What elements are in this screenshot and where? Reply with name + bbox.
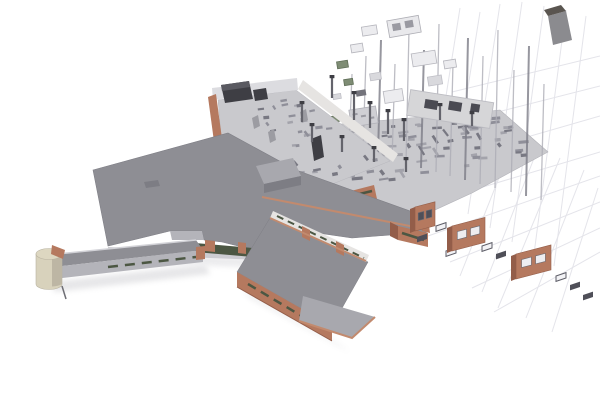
column-cap (330, 75, 335, 78)
floating-panel (383, 89, 404, 104)
bim-model-rendering (0, 0, 600, 400)
brick-panel-window (418, 211, 424, 220)
brick-panel-window (426, 209, 432, 218)
south-brick-post (205, 240, 215, 252)
column-cap (402, 118, 407, 121)
floating-panel-face (333, 93, 342, 99)
floor-partition-speckle (515, 151, 521, 153)
column-cap (438, 103, 443, 106)
column-cap (352, 91, 357, 94)
south-brick-post (238, 242, 246, 254)
floating-panel (333, 93, 342, 99)
floor-partition-speckle (388, 135, 393, 138)
column-cap (340, 135, 345, 138)
floor-partition-speckle (296, 144, 300, 147)
panel-opening (404, 20, 413, 28)
floating-panel-face (361, 25, 377, 36)
floor-partition-speckle (292, 144, 296, 147)
column-cap (300, 101, 305, 104)
floor-partition-speckle (443, 146, 450, 149)
floor-partition-speckle (263, 116, 269, 120)
column-cap (470, 111, 475, 114)
west-bar-brick-post (196, 246, 205, 260)
floating-panel (344, 78, 354, 85)
column-cap (372, 146, 377, 149)
floating-panel (361, 25, 377, 36)
floating-panel-face (427, 75, 442, 86)
floor-partition-speckle (382, 131, 387, 134)
rooftop-plant-box-small (253, 88, 268, 101)
column-cap (368, 101, 373, 104)
floating-panel-face (344, 78, 354, 85)
panel-opening (392, 23, 401, 31)
floating-panel-face (443, 59, 456, 69)
floating-panel (427, 75, 442, 86)
floor-partition-speckle (296, 104, 300, 108)
floating-panel-face (370, 72, 382, 81)
floating-panel (370, 72, 382, 81)
cylinder-shade (52, 255, 62, 287)
brick-panel-side (447, 226, 452, 253)
brick-panel-side (410, 207, 415, 233)
bim-visualization-canvas (0, 0, 600, 400)
floating-panel-face (350, 43, 363, 53)
floating-panel (337, 60, 349, 69)
floating-panel-face (337, 60, 349, 69)
floor-partition-speckle (503, 126, 508, 129)
floating-panel (443, 59, 456, 69)
column-cap (404, 157, 409, 160)
floor-partition-speckle (388, 178, 395, 182)
floor-partition-speckle (472, 156, 481, 160)
floor-partition-speckle (474, 146, 480, 149)
roof-step-face (170, 231, 204, 240)
column-cap (386, 109, 391, 112)
brick-panel-side (511, 254, 516, 281)
floating-panel (350, 43, 363, 53)
column-cap (310, 123, 315, 126)
floating-panel-face (383, 89, 404, 104)
